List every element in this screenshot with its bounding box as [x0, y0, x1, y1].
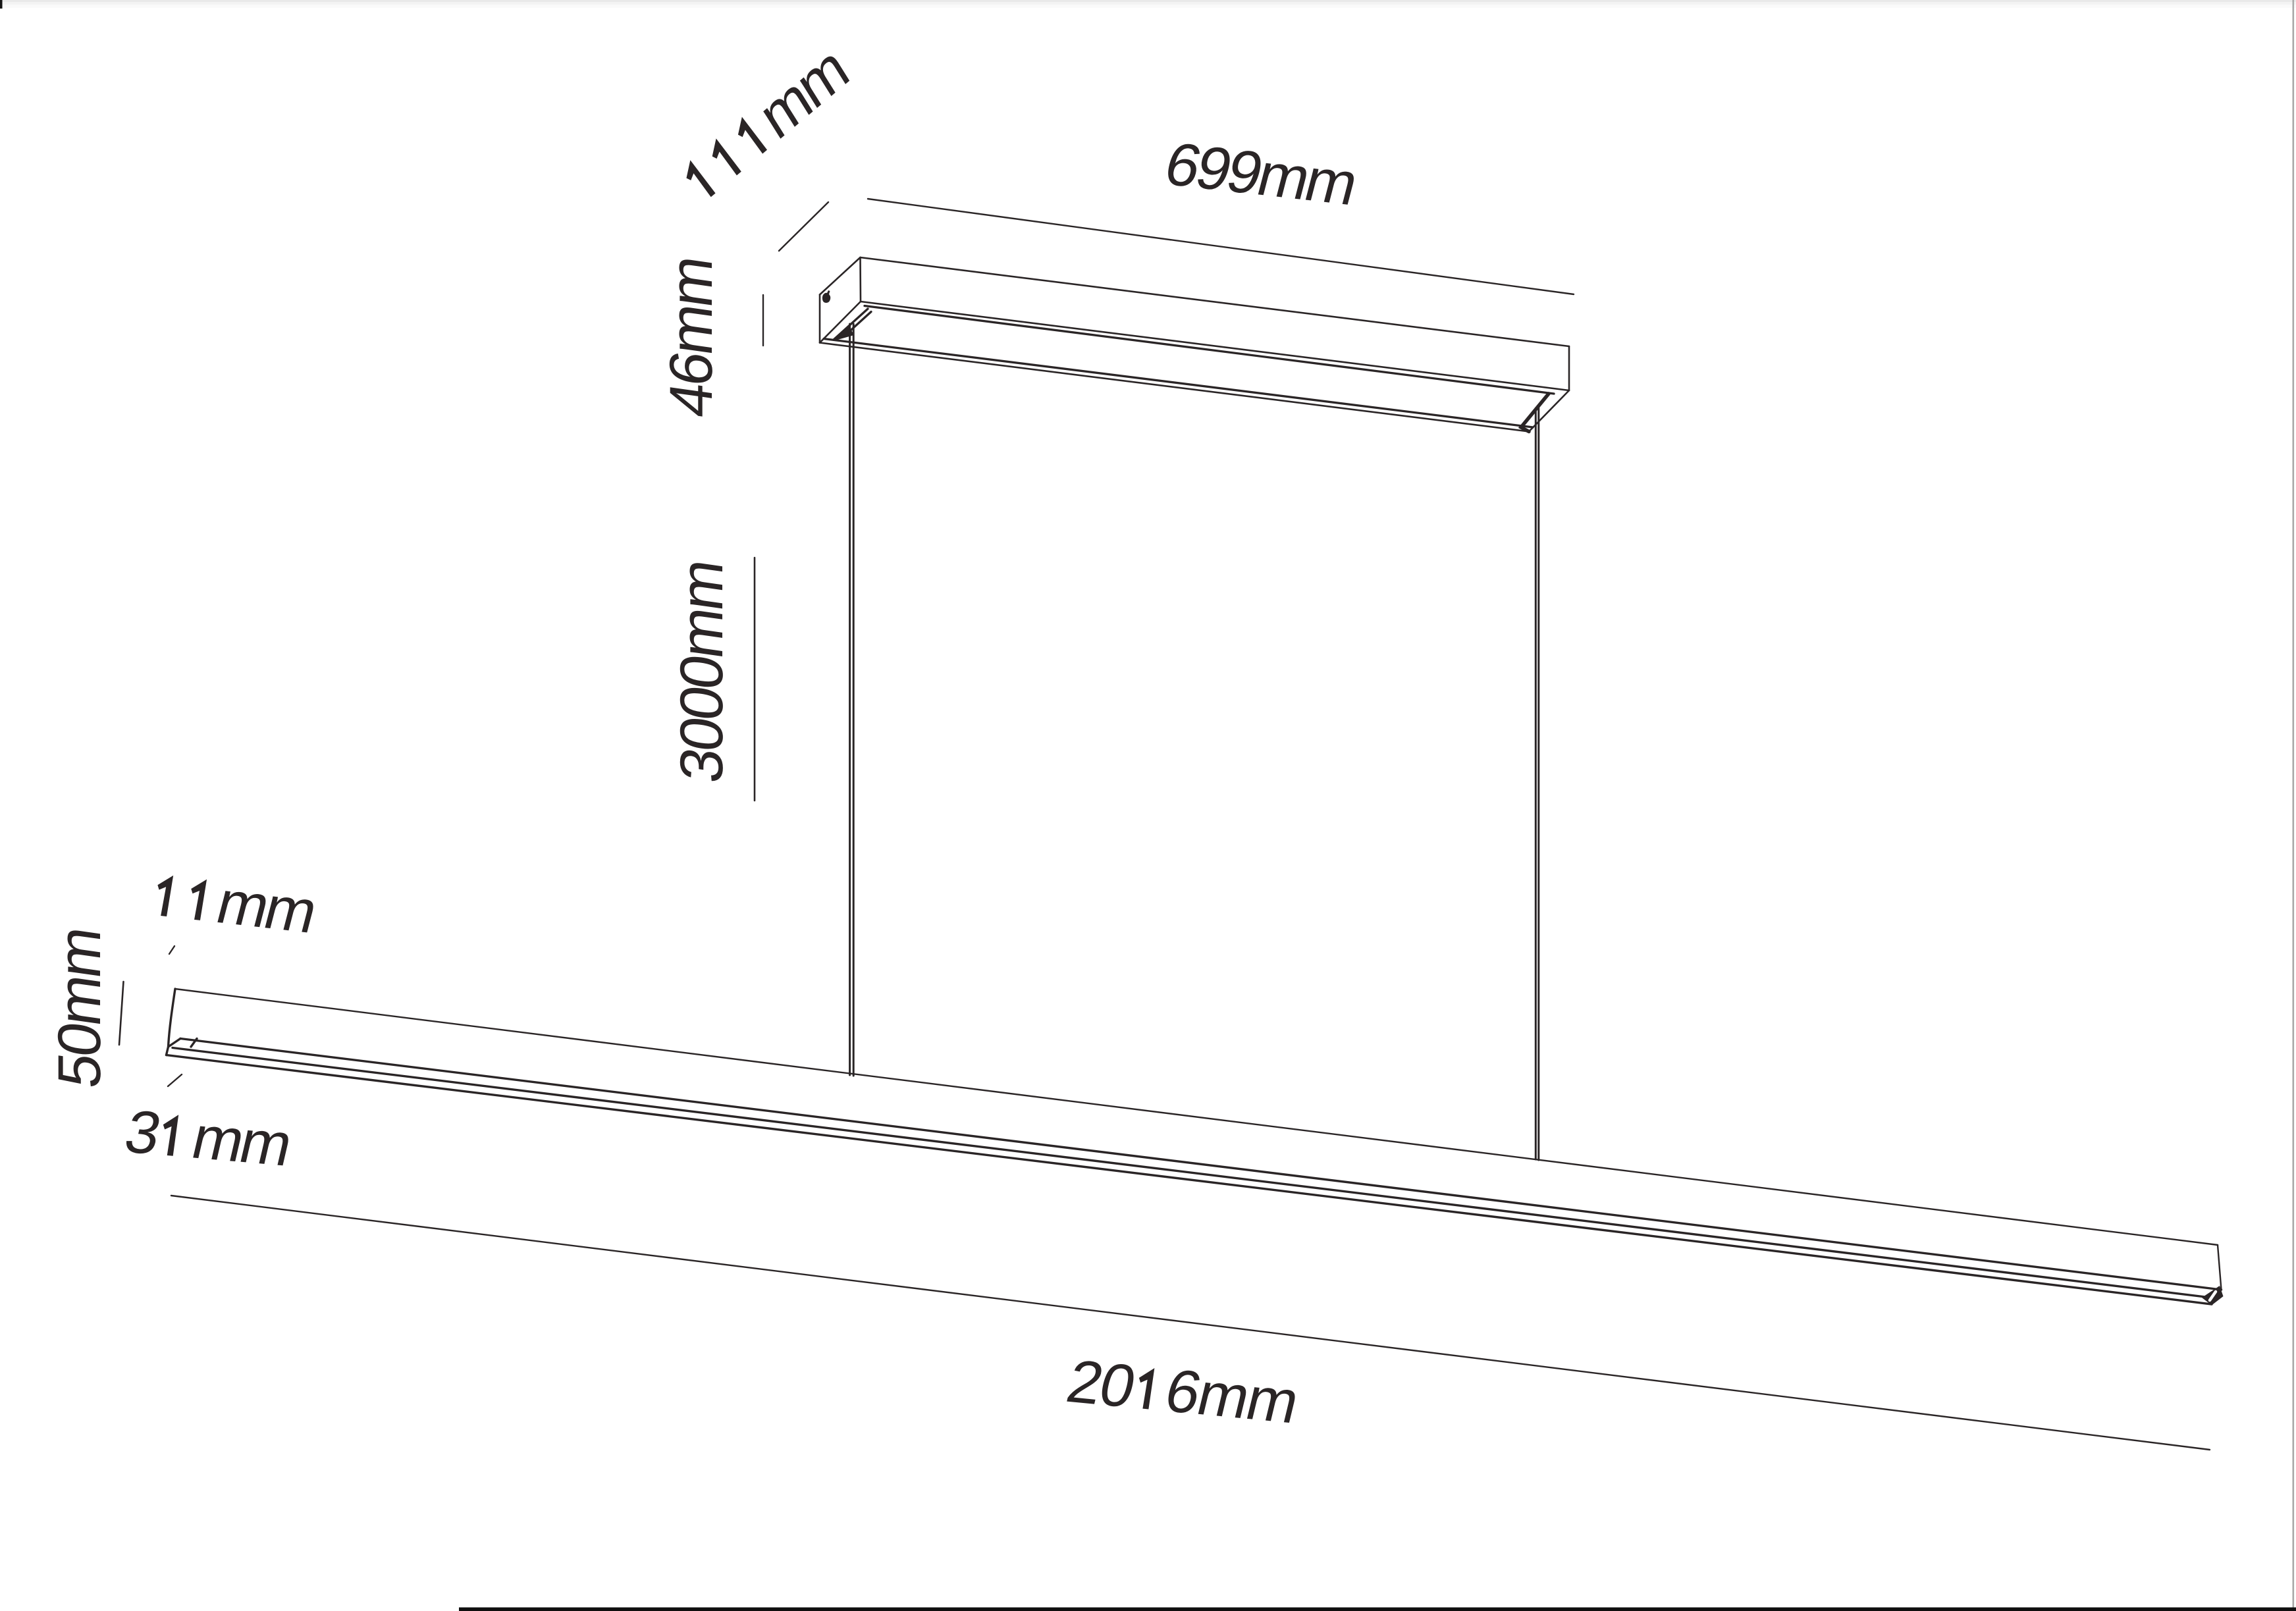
svg-text:3000mm: 3000mm: [667, 557, 735, 786]
svg-text:50mm: 50mm: [45, 924, 113, 1092]
svg-text:46mm: 46mm: [656, 253, 724, 421]
svg-text:mm: mm: [210, 868, 322, 945]
svg-text:mm: mm: [186, 1103, 296, 1178]
svg-text:6mm: 6mm: [1159, 1356, 1305, 1436]
